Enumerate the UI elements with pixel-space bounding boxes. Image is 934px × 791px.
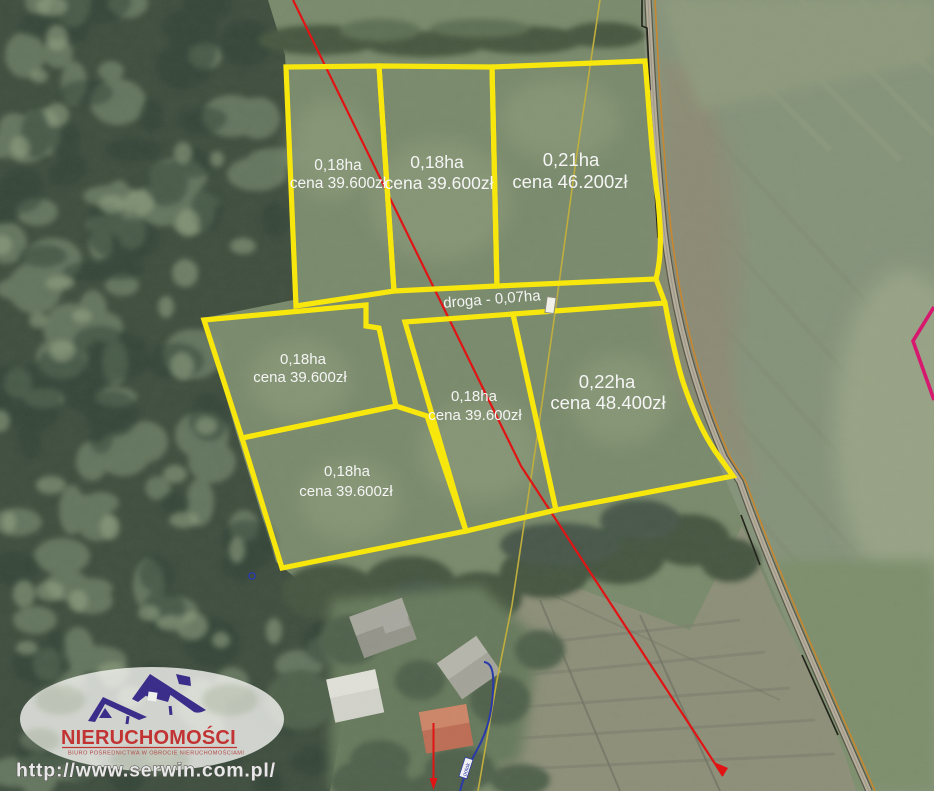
svg-text:BIURO POŚREDNICTWA W OBROCIE N: BIURO POŚREDNICTWA W OBROCIE NIERUCHOMOŚ… <box>68 749 244 757</box>
svg-text:http://www.serwin.com.pl/: http://www.serwin.com.pl/ <box>16 760 276 782</box>
svg-text:cena 39.600zł: cena 39.600zł <box>428 407 522 424</box>
svg-text:0,18ha: 0,18ha <box>324 463 371 480</box>
svg-text:cena 48.400zł: cena 48.400zł <box>550 392 665 413</box>
svg-text:cena 39.600zł: cena 39.600zł <box>253 369 347 386</box>
svg-text:cena 39.600zł: cena 39.600zł <box>290 175 387 192</box>
svg-text:0,18ha: 0,18ha <box>314 157 362 174</box>
svg-text:cena 46.200zł: cena 46.200zł <box>512 171 627 192</box>
svg-text:0,18ha: 0,18ha <box>280 351 327 368</box>
svg-text:0,21ha: 0,21ha <box>543 149 600 170</box>
svg-text:0,22ha: 0,22ha <box>579 371 636 392</box>
svg-text:0,18ha: 0,18ha <box>451 388 498 405</box>
svg-text:0,18ha: 0,18ha <box>410 152 464 172</box>
svg-text:cena 39.600zł: cena 39.600zł <box>385 173 494 193</box>
svg-text:cena 39.600zł: cena 39.600zł <box>299 483 393 500</box>
svg-text:NIERUCHOMOŚCI: NIERUCHOMOŚCI <box>61 725 236 749</box>
